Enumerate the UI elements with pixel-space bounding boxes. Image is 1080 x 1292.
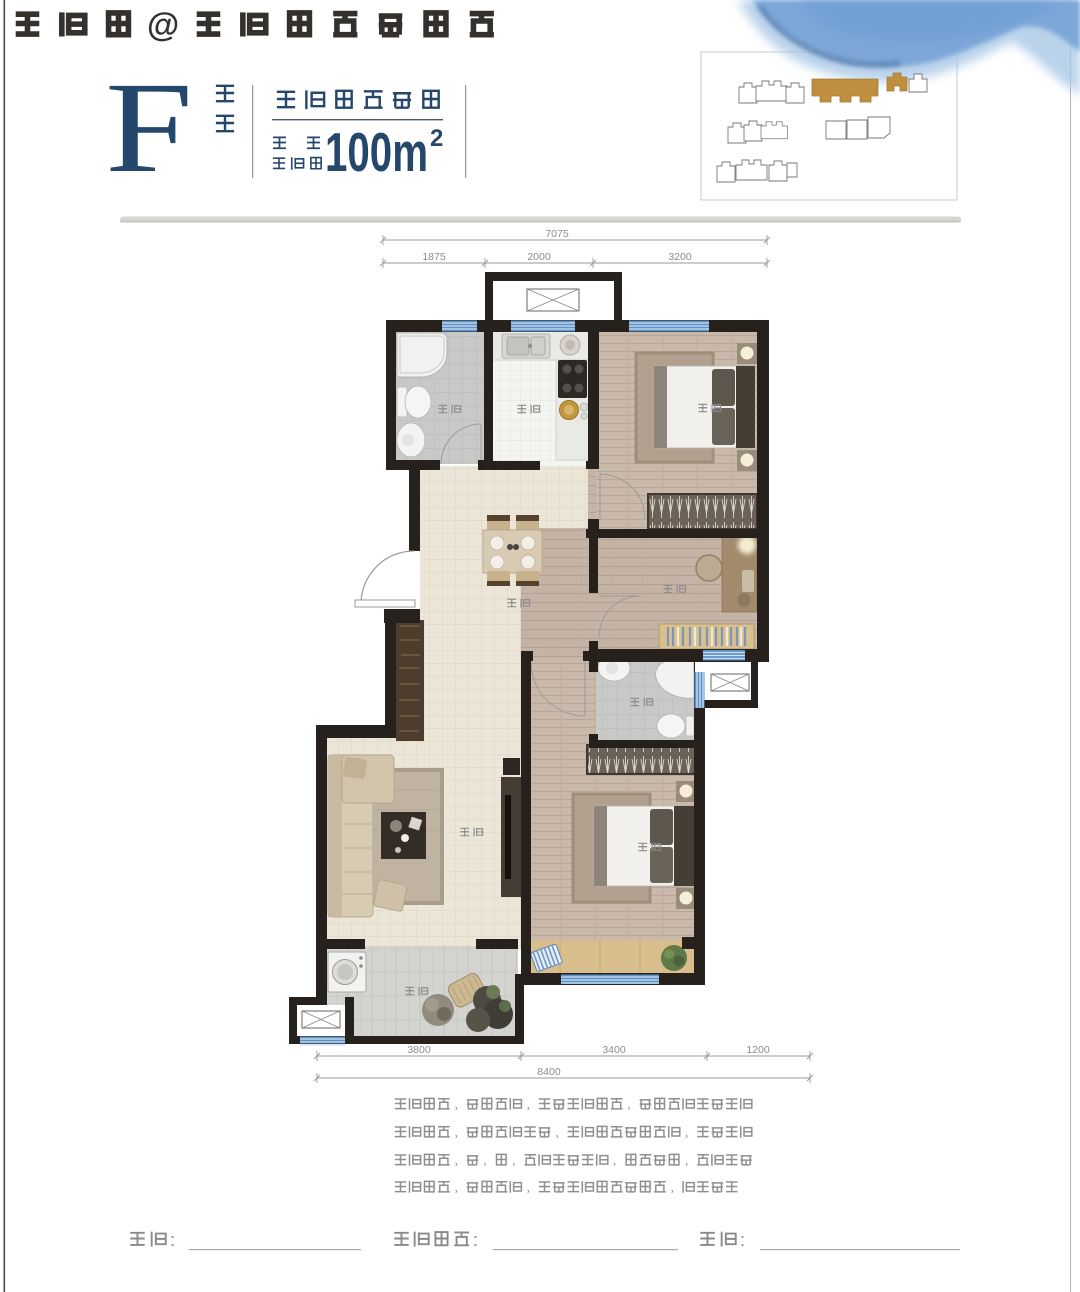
svg-text:3800: 3800 [407,1044,431,1056]
svg-text:3400: 3400 [602,1044,626,1056]
svg-text:1875: 1875 [422,251,446,263]
svg-text::: : [473,1230,478,1250]
svg-text:F: F [105,56,193,200]
svg-text:2: 2 [430,125,443,152]
svg-text:100m: 100m [325,121,428,183]
svg-text:1200: 1200 [746,1044,770,1056]
svg-text::: : [740,1230,745,1250]
svg-text:7075: 7075 [545,228,569,240]
svg-text::: : [170,1230,175,1250]
svg-text:3200: 3200 [668,251,692,263]
svg-text:8400: 8400 [537,1066,561,1078]
svg-text:2000: 2000 [527,251,551,263]
svg-text:@: @ [147,6,179,43]
